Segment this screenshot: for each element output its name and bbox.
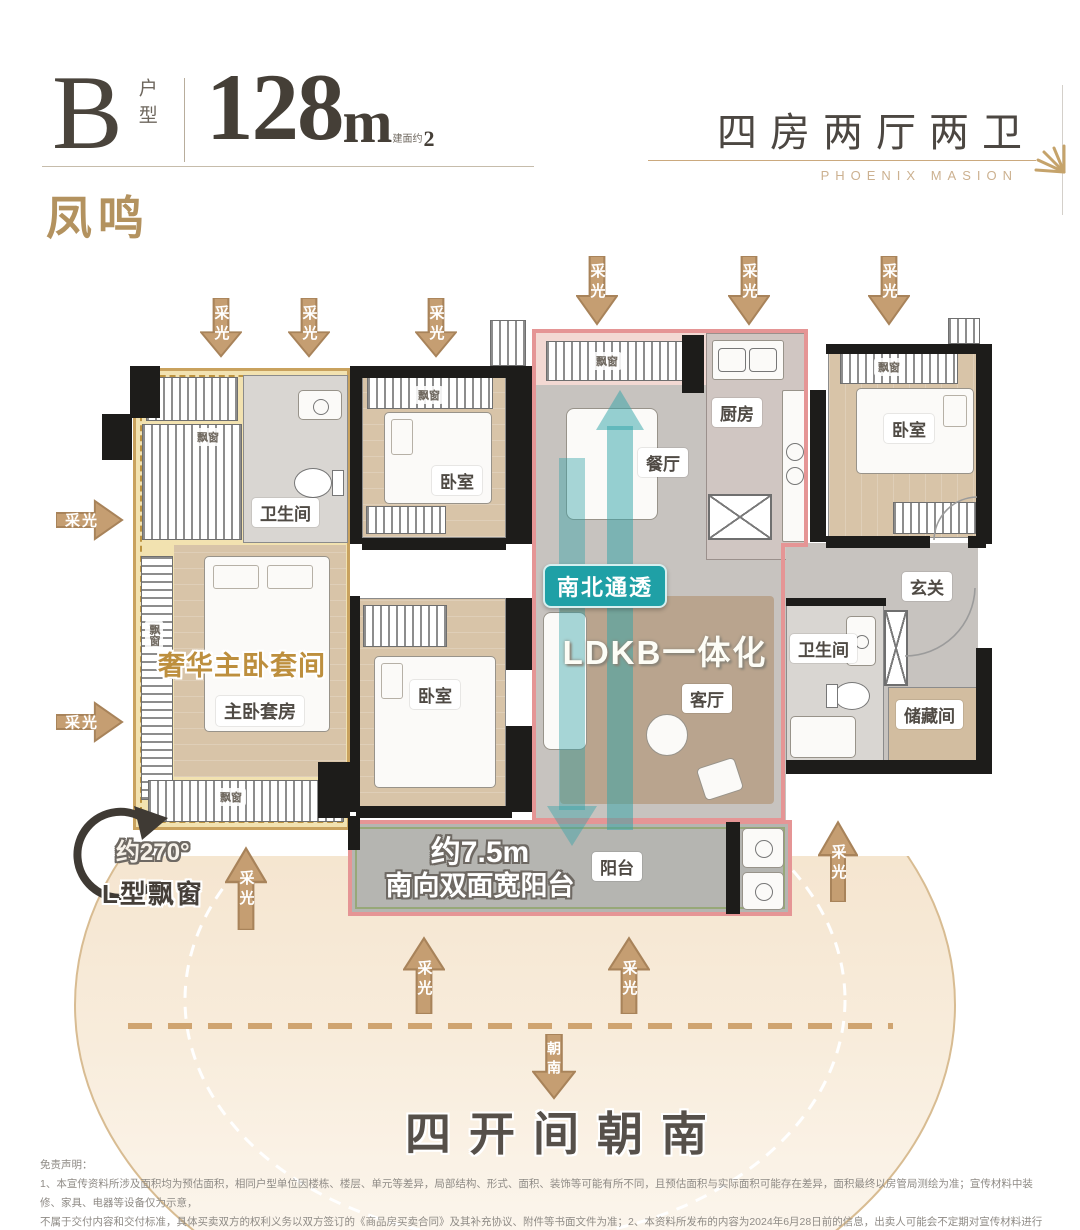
disclaimer-line2: 不属于交付内容和交付标准，具体买卖双方的权利义务以双方签订的《商品房买卖合同》及…: [40, 1213, 1050, 1230]
wall: [102, 414, 132, 460]
rotation-degree-label: 约270°: [116, 832, 190, 867]
balcony-length: 约7.5m: [370, 836, 590, 871]
ensuite-sink: [298, 390, 342, 420]
baywindow-label: 飘窗: [216, 788, 246, 806]
light-arrow-icon: 采光: [56, 700, 124, 744]
balcony-callout: 约7.5m 南向双面宽阳台: [370, 836, 590, 902]
room-label-storage: 储藏间: [896, 700, 963, 729]
wall: [350, 596, 360, 812]
wall: [350, 366, 534, 378]
bedroom2-closet-hatch: [366, 506, 446, 534]
light-arrow-icon: 采光: [728, 256, 770, 326]
light-arrow-icon: 采光: [225, 846, 267, 930]
baywindow-label: 飘窗: [193, 428, 223, 446]
master-suite-title: 奢华主卧套间: [158, 644, 326, 683]
master-closet-hatch: [142, 424, 242, 540]
kitchen-island-cabinet: [708, 494, 772, 540]
light-arrow-icon: 采光: [818, 820, 858, 902]
room-label-bedroom1: 卧室: [884, 414, 934, 443]
south-span-title: 四开间朝南: [185, 1098, 945, 1164]
l-baywindow-label: L型飘窗: [102, 874, 204, 911]
bedroom1-closet-hatch: [893, 502, 976, 534]
bathroom2-toilet-icon: [834, 682, 870, 710]
balcony-divider-wall: [726, 822, 740, 914]
wall-chimney-hatch: [490, 320, 526, 366]
room-label-bedroom3: 卧室: [410, 680, 460, 709]
wall: [130, 366, 160, 418]
balcony-desc: 南向双面宽阳台: [370, 871, 590, 902]
wall: [976, 344, 992, 544]
south-arrow-icon: 朝南: [532, 1034, 576, 1100]
washing-machine-icon: [742, 828, 784, 868]
light-arrow-icon: 采光: [868, 256, 910, 326]
bathroom2-vanity: [790, 716, 856, 758]
wall: [506, 378, 534, 544]
disclaimer-title: 免责声明：: [40, 1156, 1050, 1175]
north-south-badge: 南北通透: [543, 564, 667, 608]
room-label-hall: 玄关: [902, 572, 952, 601]
light-arrow-icon: 采光: [200, 298, 242, 358]
wall: [506, 598, 534, 670]
master-bottom-baywindow: [148, 780, 344, 822]
bathroom2-toilet-tank: [826, 684, 838, 708]
room-label-dining: 餐厅: [638, 448, 688, 477]
floorplan-page: B 户型 128 m 建面约 2 凤鸣 四房两厅两卫 PHOENIX MASIO…: [0, 0, 1080, 1230]
wall: [786, 598, 886, 606]
wall: [810, 390, 826, 542]
hall-shoe-cabinet: [884, 610, 908, 686]
ensuite-toilet-icon: [294, 468, 332, 498]
wall: [356, 806, 512, 818]
kitchen-sink-counter: [712, 340, 784, 380]
wall: [348, 816, 360, 850]
living-coffee-table: [646, 714, 688, 756]
light-arrow-icon: 采光: [608, 936, 650, 1014]
wall: [826, 536, 930, 548]
wall: [362, 538, 506, 550]
baywindow-label: 飘窗: [592, 352, 622, 370]
bedroom3-closet-hatch: [363, 605, 447, 647]
room-label-bedroom2: 卧室: [432, 466, 482, 495]
wall: [318, 762, 350, 818]
wall: [826, 344, 986, 354]
wall: [786, 760, 992, 774]
light-arrow-icon: 采光: [288, 298, 330, 358]
room-label-living: 客厅: [682, 684, 732, 713]
ldkb-callout: LDKB一体化: [560, 626, 770, 674]
wall: [350, 372, 362, 544]
baywindow-label: 飘窗: [414, 386, 444, 404]
fan-logo-icon: [1026, 142, 1072, 188]
bedroom3-bed: [374, 656, 496, 788]
room-label-master-room: 主卧套房: [216, 696, 304, 726]
wall: [682, 335, 704, 393]
kitchen-counter: [782, 390, 806, 542]
wall: [968, 536, 986, 548]
light-arrow-icon: 采光: [403, 936, 445, 1014]
washing-machine-icon: [742, 872, 784, 910]
disclaimer: 免责声明： 1、本宣传资料所涉及面积均为预估面积，相同户型单位因楼栋、楼层、单元…: [40, 1156, 1050, 1230]
light-arrow-icon: 采光: [415, 298, 457, 358]
light-arrow-icon: 采光: [56, 498, 124, 542]
room-label-bathroom2: 卫生间: [790, 634, 857, 663]
ensuite-toilet-tank: [332, 470, 344, 496]
wall: [506, 726, 534, 812]
wall: [976, 648, 992, 768]
room-label-kitchen: 厨房: [712, 398, 762, 427]
light-arrow-icon: 采光: [576, 256, 618, 326]
room-label-balcony: 阳台: [592, 852, 642, 881]
wall-chimney-hatch: [948, 318, 980, 344]
room-label-ensuite-bathroom: 卫生间: [252, 498, 319, 527]
disclaimer-line1: 1、本宣传资料所涉及面积均为预估面积，相同户型单位因楼栋、楼层、单元等差异，局部…: [40, 1175, 1050, 1213]
baywindow-label: 飘窗: [874, 358, 904, 376]
